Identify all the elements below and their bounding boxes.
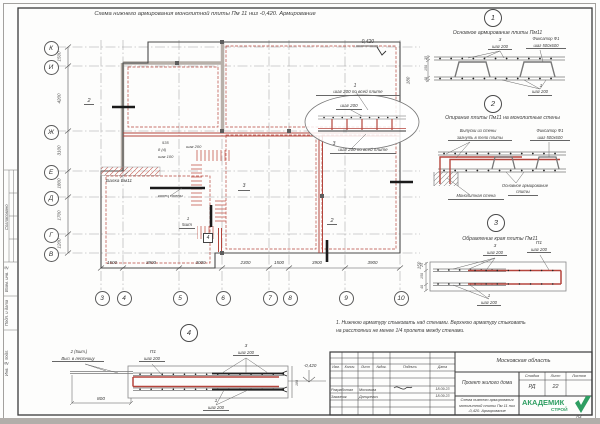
d2-out2: загнуть в тело плиты <box>448 136 512 142</box>
logo-text-main: АКАДЕМИК <box>522 399 574 407</box>
d2-base1: Основное армирование <box>490 184 560 189</box>
d2-wall-label: Монолитная стена <box>448 194 504 200</box>
note-line1: 1. Нижнюю арматуру стыковать над стенами… <box>336 321 588 327</box>
grid-col-6: 6 <box>216 291 231 306</box>
d3-p1: П1 <box>532 241 546 246</box>
detail2-title: Опирание плиты Пм11 на монолитные стены <box>425 116 580 122</box>
reinforcement-red <box>106 46 400 263</box>
dim-row-1: 1500 <box>57 45 62 67</box>
top-bar-callout: шаг 200 по всей плите <box>316 90 400 96</box>
tb-stage-label: Стадия <box>519 374 545 378</box>
d4-dim-180: 180 <box>295 376 299 390</box>
detail2-bubble: 2 <box>484 95 502 113</box>
grid-col-4: 4 <box>117 291 132 306</box>
tb-row1-role: Разработал <box>331 388 359 392</box>
section-mark-2a: 2 <box>84 98 94 105</box>
sheet-edge-shadow <box>0 418 600 424</box>
dim-col-6: 3900 <box>304 261 330 266</box>
d4-out1: 2 (5шт.) <box>58 350 100 355</box>
pos-mark-3: 3 <box>238 184 250 191</box>
drawing-sheet: Схема нижнего армирования монолитной пли… <box>0 0 600 424</box>
stair-mark-535: 535 <box>162 141 169 145</box>
stair-mark-step200: шаг 200 <box>186 145 201 149</box>
grid-col-5: 5 <box>173 291 188 306</box>
dim-row-3: 3100 <box>57 140 62 162</box>
elevation-mark: -0,420 <box>355 40 379 46</box>
margin-podp: Подп. и дата <box>4 298 9 328</box>
d1-fix1: Фиксатор Ф1 <box>526 37 566 42</box>
d4-top-step: шаг 200 <box>233 351 259 357</box>
grid-col-9: 9 <box>339 291 354 306</box>
margin-vzam: Взам. инв. № <box>4 264 9 294</box>
d2-base2: плиты <box>508 190 538 196</box>
d1-fix2: шаг 500х600 <box>526 44 566 50</box>
d1-top-step: шаг 200 <box>488 45 512 51</box>
dimension-lines <box>65 45 403 271</box>
dim-col-4: 2300 <box>233 261 259 266</box>
dim-row-4: 1800 <box>57 173 62 195</box>
tb-project: Проект жилого дома <box>455 381 519 387</box>
tb-col-data: Дата <box>430 366 455 370</box>
dim-row-5: 1700 <box>57 204 62 226</box>
dim-col-2: 3900 <box>138 261 164 266</box>
dim-row-6: 1200 <box>57 232 62 254</box>
dim-col-5: 1500 <box>266 261 292 266</box>
dim-col-1: 1500 <box>99 261 125 266</box>
beam-label: Балка Бм11 <box>106 179 132 184</box>
d3-bot-step: шаг 200 <box>477 301 501 307</box>
tb-sheet-value: 22 <box>545 384 566 390</box>
d4-dim-800: 800 <box>88 397 114 402</box>
grid-col-7: 7 <box>263 291 278 306</box>
oval-step-callout: шаг 200 <box>336 104 362 110</box>
dim-180: 180 <box>406 70 411 92</box>
d4-out2: Вып. в лестницу <box>52 357 104 363</box>
d4-elevation: -0,420 <box>296 364 324 369</box>
tb-row2-role: Заказчик <box>331 395 359 399</box>
detail3-drawing <box>424 255 566 299</box>
d2-fix1: Фиксатор Ф1 <box>530 129 570 134</box>
d3-dim-40: 40 <box>420 280 424 294</box>
d4-bot-num: 1 <box>211 399 221 404</box>
tb-doc1: Схема нижнего армирования <box>455 398 519 402</box>
dim-col-3: 3000 <box>188 261 214 266</box>
wall-end-label: конец стены <box>158 194 183 198</box>
note-line2: на расстоянии не менее 1/4 пролета между… <box>336 329 588 335</box>
d3-top-step: шаг 200 <box>483 251 507 257</box>
tb-col-podpis: Подпись <box>390 366 430 370</box>
d2-out1: Выпуски из стены <box>448 129 508 134</box>
stair-count: 5шт <box>179 223 195 229</box>
tb-row1-name: Москвина <box>359 388 391 392</box>
d1-bot-step: шаг 200 <box>528 90 552 96</box>
beam-hatch <box>101 167 160 176</box>
detail3-bubble: 3 <box>487 214 505 232</box>
bot-bar-callout: шаг 200 по всей плите <box>330 148 396 154</box>
margin-soglasovano: Согласовано <box>4 175 9 259</box>
tb-stage-value: РД <box>519 384 545 390</box>
sheet-title: Схема нижнего армирования монолитной пли… <box>80 11 330 17</box>
d1-bot-num: 1 <box>536 84 546 89</box>
detail1-bubble: 1 <box>484 9 502 27</box>
dim-col-7: 3900 <box>360 261 386 266</box>
section-mark-2b: 2 <box>327 218 337 225</box>
grid-row-Ж: Ж <box>44 125 59 140</box>
d1-top-num: 3 <box>495 38 505 43</box>
tb-col-list: Лист <box>358 366 373 370</box>
pos-box-4: 4 <box>203 233 213 243</box>
d3-bot-num: 1 <box>484 294 494 299</box>
grid-col-10: 10 <box>394 291 409 306</box>
tb-col-izm: Изм. <box>330 366 342 370</box>
margin-inv: Инв. № подл. <box>4 335 9 391</box>
d3-top-num: 3 <box>490 244 500 249</box>
detail4-bubble: 4 <box>180 324 198 342</box>
stair-mark-step100: шаг 100 <box>158 155 173 159</box>
tb-sheets-label: Листов <box>566 374 592 378</box>
oval-callout <box>305 95 419 149</box>
tb-row2-name: Данцкевич <box>359 395 391 399</box>
d2-fix2: шаг 500х600 <box>530 136 570 142</box>
stair-mark-84: 8 (4) <box>158 148 166 152</box>
bot-bar-num: 3 <box>330 142 338 148</box>
d4-bot-step: шаг 200 <box>203 406 229 412</box>
d4-p1-step: шаг 200 <box>139 357 165 363</box>
tb-col-kolich: Колич. <box>342 366 358 370</box>
grid-col-3: 3 <box>95 291 110 306</box>
d4-top-num: 3 <box>241 344 251 349</box>
logo-text-sub: СТРОЙ <box>551 408 579 413</box>
d3-p1-step: шаг 200 <box>527 248 551 254</box>
grid-col-8: 8 <box>283 291 298 306</box>
d1-dim-40: 40 <box>424 72 428 86</box>
dim-row-2: 4200 <box>57 87 62 109</box>
tb-region: Московская область <box>455 358 592 364</box>
tb-col-ndok: №док. <box>373 366 390 370</box>
tb-doc3: -0,420. Армирование <box>455 409 519 413</box>
tb-row2-date: 18.09.23 <box>430 395 455 399</box>
tb-sheet-label: Лист <box>545 374 566 378</box>
tb-row1-date: 18.09.23 <box>430 388 455 392</box>
d4-p1: П1 <box>146 350 160 355</box>
